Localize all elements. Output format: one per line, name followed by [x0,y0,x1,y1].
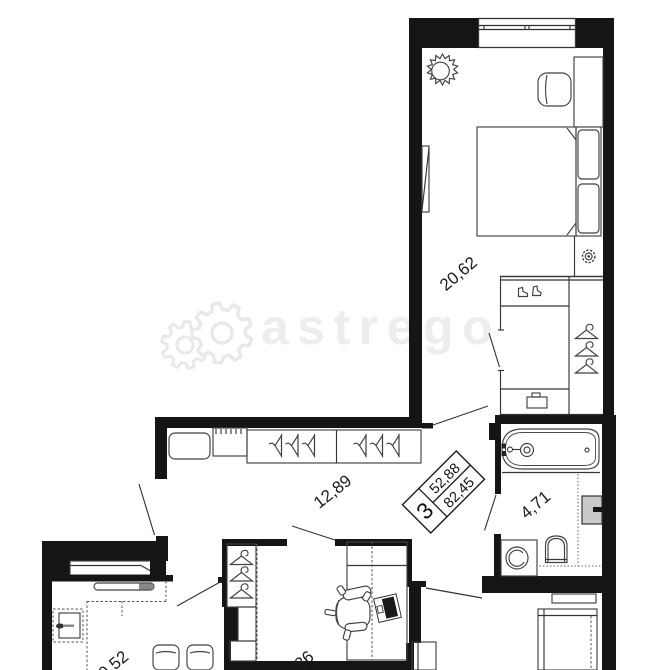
svg-text:0,52: 0,52 [95,647,133,670]
svg-text:12,89: 12,89 [310,471,355,512]
svg-text:20,62: 20,62 [436,253,481,295]
svg-text:4,71: 4,71 [517,487,555,523]
svg-text:astrego: astrego [261,299,501,355]
